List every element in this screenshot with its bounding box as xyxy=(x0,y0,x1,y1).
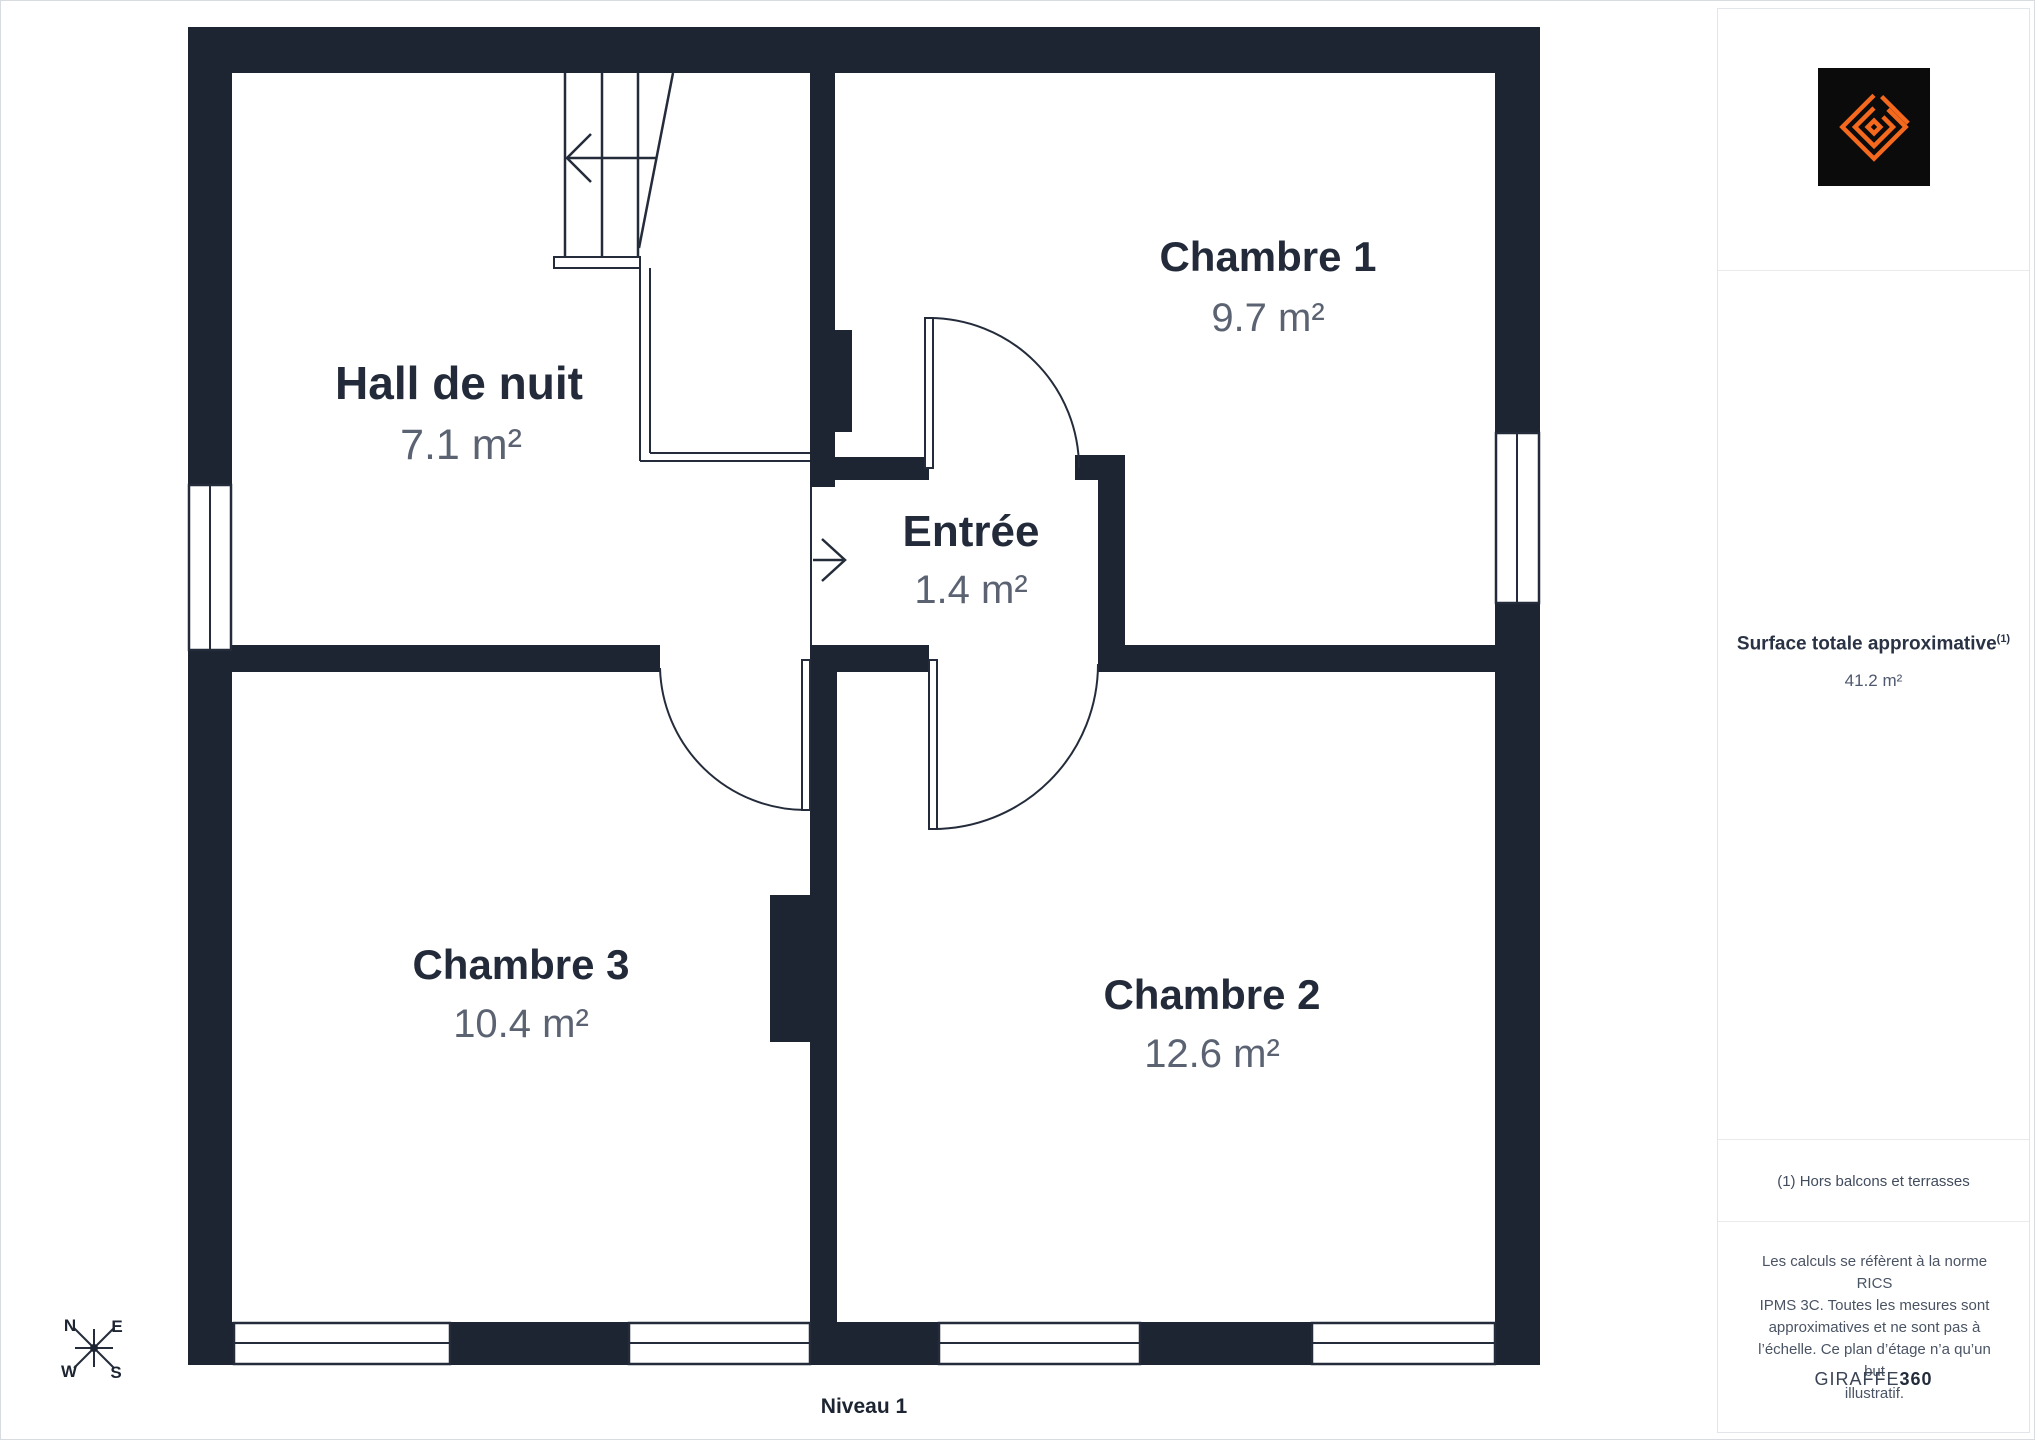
door-chambre-2 xyxy=(929,660,1098,829)
compass-north: N xyxy=(64,1316,76,1335)
room-area-chambre-1: 9.7 m² xyxy=(1211,296,1324,340)
room-label-chambre-2: Chambre 2 xyxy=(1103,971,1320,1018)
sidebar-divider-2 xyxy=(1718,1139,2029,1140)
room-area-chambre-2: 12.6 m² xyxy=(1144,1032,1280,1076)
compass-east: E xyxy=(111,1317,122,1336)
room-label-chambre-1: Chambre 1 xyxy=(1159,233,1376,280)
compass-icon: N E W S xyxy=(61,1316,123,1382)
door-chambre-1 xyxy=(925,318,1079,468)
window-left xyxy=(189,485,231,650)
legal-line: approximatives et ne sont pas à xyxy=(1746,1317,2003,1339)
legal-line: IPMS 3C. Toutes les mesures sont xyxy=(1746,1295,2003,1317)
brand-name: GIRAFFE xyxy=(1814,1369,1899,1389)
window-bottom-4 xyxy=(1312,1323,1495,1364)
surface-total-footnote-marker: (1) xyxy=(1997,633,2010,645)
sidebar-divider-1 xyxy=(1718,270,2029,271)
surface-total-value: 41.2 m² xyxy=(1718,671,2029,691)
windows xyxy=(189,433,1539,1364)
compass-south: S xyxy=(110,1363,121,1382)
outer-walls xyxy=(188,27,1540,1365)
surface-total-text: Surface totale approximative xyxy=(1737,633,1997,654)
giraffe360-logo-mark xyxy=(1836,89,1912,165)
legal-line: Les calculs se réfèrent à la norme RICS xyxy=(1746,1251,2003,1295)
page: Hall de nuit 7.1 m² Chambre 1 9.7 m² Ent… xyxy=(0,0,2035,1440)
level-label: Niveau 1 xyxy=(821,1395,908,1418)
window-right xyxy=(1496,433,1539,603)
footnote-balconies: (1) Hors balcons et terrasses xyxy=(1718,1173,2029,1190)
entrance-arrow xyxy=(813,539,845,581)
brand-suffix: 360 xyxy=(1899,1369,1932,1389)
window-bottom-2 xyxy=(629,1323,810,1364)
room-area-entree: 1.4 m² xyxy=(914,568,1027,612)
room-label-chambre-3: Chambre 3 xyxy=(412,941,629,988)
giraffe360-logo xyxy=(1818,68,1930,186)
surface-total-label: Surface totale approximative(1) xyxy=(1718,633,2029,655)
stairs xyxy=(554,73,811,645)
compass-west: W xyxy=(61,1362,78,1381)
stairs-direction-arrow xyxy=(567,134,657,182)
door-chambre-3 xyxy=(660,660,810,810)
room-label-hall-de-nuit: Hall de nuit xyxy=(335,357,583,409)
room-area-chambre-3: 10.4 m² xyxy=(453,1002,589,1046)
room-area-hall-de-nuit: 7.1 m² xyxy=(400,421,522,469)
window-bottom-3 xyxy=(939,1323,1140,1364)
stair-landing xyxy=(554,257,640,268)
window-bottom-1 xyxy=(234,1323,450,1364)
sidebar-divider-3 xyxy=(1718,1221,2029,1222)
doors xyxy=(660,318,1098,829)
room-label-entree: Entrée xyxy=(903,507,1040,556)
brand-wordmark: GIRAFFE360 xyxy=(1718,1369,2029,1390)
info-sidebar: Surface totale approximative(1) 41.2 m² … xyxy=(1717,8,2030,1433)
